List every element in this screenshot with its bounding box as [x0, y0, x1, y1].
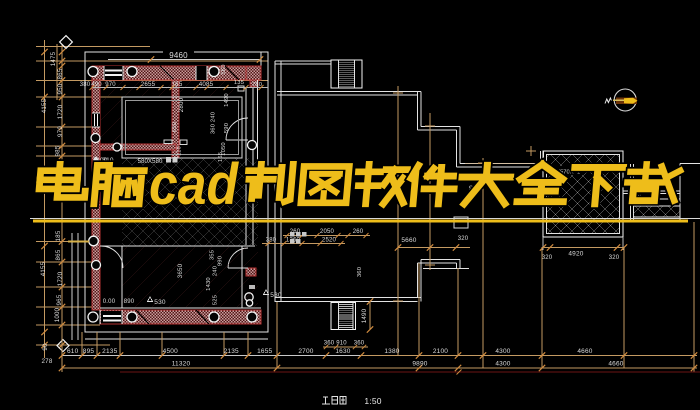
- svg-text:1380: 1380: [384, 348, 399, 355]
- svg-text:865: 865: [55, 249, 62, 260]
- svg-text:240: 240: [211, 112, 217, 122]
- svg-text:530: 530: [154, 299, 166, 306]
- svg-text:1720: 1720: [57, 271, 64, 286]
- svg-text:1720: 1720: [57, 104, 64, 119]
- svg-text:4920: 4920: [568, 251, 583, 258]
- svg-text:3650: 3650: [177, 263, 184, 278]
- svg-text:2655: 2655: [141, 81, 156, 88]
- svg-text:4300: 4300: [495, 361, 510, 368]
- svg-text:1:50: 1:50: [364, 396, 381, 406]
- svg-text:278: 278: [42, 358, 53, 365]
- svg-text:2800: 2800: [178, 97, 185, 112]
- svg-text:4500: 4500: [163, 348, 178, 355]
- svg-text:650: 650: [172, 122, 178, 132]
- svg-text:1490: 1490: [361, 308, 368, 323]
- svg-text:360: 360: [357, 267, 363, 277]
- svg-text:1430: 1430: [206, 277, 212, 291]
- svg-text:895: 895: [83, 348, 95, 355]
- svg-text:2135: 2135: [224, 348, 239, 355]
- svg-text:590: 590: [224, 123, 230, 133]
- svg-text:5660: 5660: [401, 237, 416, 244]
- svg-text:990: 990: [218, 256, 224, 266]
- svg-text:9890: 9890: [412, 361, 427, 368]
- svg-text:1655: 1655: [257, 348, 272, 355]
- svg-text:4660: 4660: [577, 348, 592, 355]
- svg-text:950: 950: [57, 83, 64, 94]
- svg-text:2050: 2050: [320, 229, 335, 235]
- svg-text:355: 355: [210, 250, 216, 260]
- svg-text:2520: 2520: [322, 238, 337, 244]
- svg-text:185: 185: [55, 230, 62, 241]
- svg-text:1000: 1000: [54, 307, 61, 322]
- svg-text:4085: 4085: [199, 81, 214, 88]
- svg-text:360: 360: [211, 124, 217, 134]
- svg-text:965: 965: [56, 294, 63, 305]
- svg-text:2135: 2135: [102, 348, 117, 355]
- svg-text:1475: 1475: [50, 51, 57, 66]
- svg-text:380: 380: [80, 82, 91, 88]
- svg-text:4155: 4155: [41, 98, 48, 113]
- svg-text:135: 135: [234, 80, 244, 86]
- svg-text:525: 525: [213, 295, 219, 305]
- svg-text:985: 985: [55, 145, 62, 156]
- svg-text:4660: 4660: [608, 361, 623, 368]
- svg-text:610: 610: [67, 348, 79, 355]
- svg-text:4300: 4300: [495, 348, 510, 355]
- svg-text:360: 360: [354, 341, 365, 347]
- svg-text:780: 780: [252, 82, 262, 88]
- svg-text:890: 890: [124, 299, 135, 305]
- svg-text:0.00: 0.00: [103, 299, 116, 305]
- svg-text:4155: 4155: [40, 261, 47, 276]
- svg-text:2700: 2700: [298, 348, 313, 355]
- svg-text:380: 380: [266, 238, 277, 244]
- svg-text:320: 320: [458, 236, 469, 242]
- svg-text:1630: 1630: [335, 348, 350, 355]
- svg-text:970: 970: [57, 126, 64, 137]
- svg-text:560: 560: [221, 64, 227, 74]
- svg-text:cad: cad: [149, 152, 239, 217]
- svg-text:90: 90: [42, 343, 49, 351]
- svg-text:865: 865: [57, 68, 64, 79]
- svg-text:360: 360: [324, 341, 335, 347]
- svg-text:260: 260: [353, 229, 364, 235]
- svg-text:9460: 9460: [169, 51, 188, 60]
- svg-text:1490: 1490: [224, 93, 230, 107]
- svg-text:320: 320: [542, 255, 553, 261]
- svg-text:240: 240: [213, 266, 219, 276]
- svg-text:11320: 11320: [172, 361, 191, 368]
- svg-text:320: 320: [609, 255, 620, 261]
- svg-text:2100: 2100: [433, 348, 448, 355]
